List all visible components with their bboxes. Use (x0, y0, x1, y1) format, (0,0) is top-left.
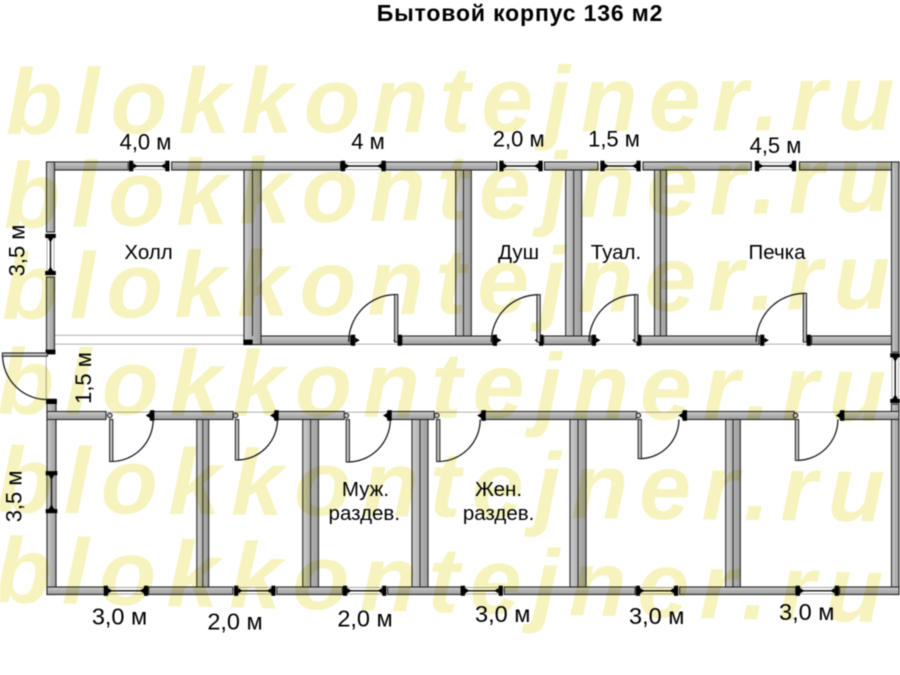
svg-text:blokkontejner.ru: blokkontejner.ru (1, 224, 900, 339)
svg-text:blokkontejner.ru: blokkontejner.ru (0, 330, 897, 442)
svg-text:blokkontejner.ru: blokkontejner.ru (0, 518, 895, 642)
svg-text:Бытовой корпус 136 м2: Бытовой корпус 136 м2 (377, 0, 664, 26)
